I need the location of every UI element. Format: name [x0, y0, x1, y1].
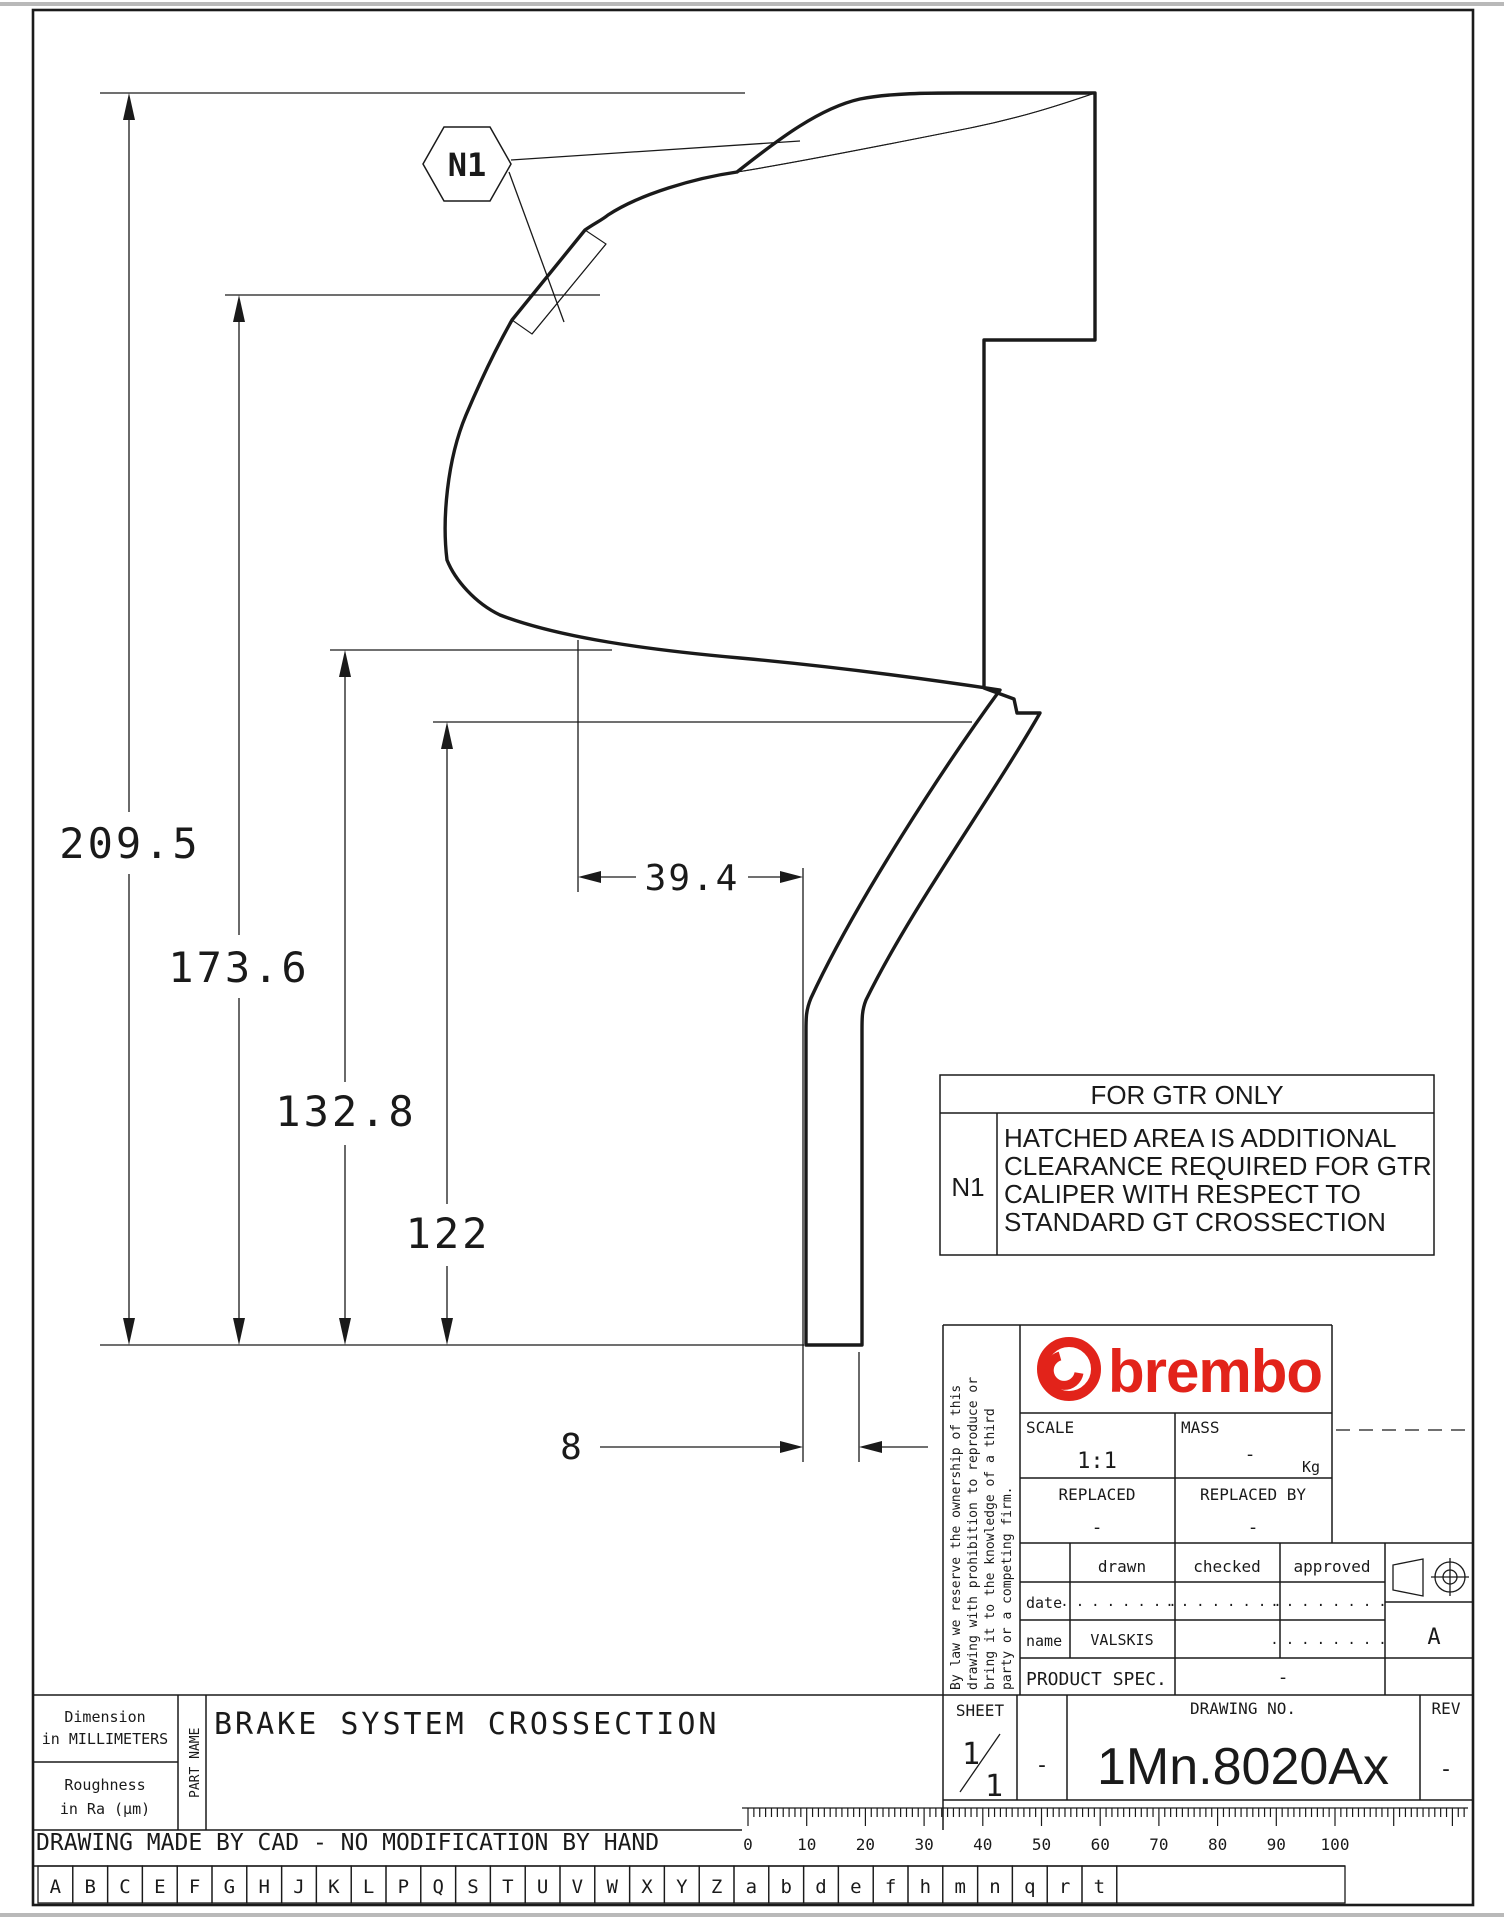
dim-note-line1: Dimension: [64, 1708, 145, 1726]
name-approved-dots: ........: [1270, 1632, 1393, 1648]
dim-173-label: 173.6: [168, 943, 309, 992]
rev-label: REV: [1432, 1699, 1461, 1718]
note-line-3: CALIPER WITH RESPECT TO: [1004, 1179, 1361, 1209]
sheet-den: 1: [985, 1769, 1003, 1804]
col-checked-label: checked: [1193, 1557, 1260, 1576]
note-title: FOR GTR ONLY: [1090, 1080, 1283, 1110]
gtr-note-box: FOR GTR ONLY N1 HATCHED AREA IS ADDITION…: [940, 1075, 1434, 1255]
zone-letter: e: [850, 1876, 861, 1898]
zone-letter: E: [154, 1876, 165, 1898]
zone-letter: t: [1094, 1876, 1105, 1898]
title-block: By law we reserve the ownership of this …: [33, 1325, 1473, 1830]
product-spec-value: -: [1278, 1667, 1289, 1688]
zone-cell-empty: [1117, 1866, 1345, 1903]
n1-callout-label: N1: [448, 146, 487, 184]
dim-39: 39.4: [578, 858, 803, 899]
zone-letter: G: [224, 1876, 235, 1898]
ruler-number: 0: [743, 1835, 753, 1854]
legal-line-1: By law we reserve the ownership of this: [949, 1385, 964, 1690]
footer-strips: Dimension in MILLIMETERS Roughness in Ra…: [33, 1695, 1468, 1903]
scale-value: 1:1: [1077, 1449, 1117, 1474]
sheet-label: SHEET: [956, 1701, 1005, 1720]
rough-note-line2: in Ra (µm): [60, 1800, 150, 1818]
rev-value: -: [1439, 1757, 1452, 1782]
dim-209: 209.5: [59, 93, 200, 1345]
row-date-label: date: [1026, 1594, 1062, 1612]
col-drawn-label: drawn: [1098, 1557, 1146, 1576]
sheet-dash: -: [1035, 1753, 1048, 1778]
product-spec-label: PRODUCT SPEC.: [1026, 1669, 1167, 1690]
rough-note-line1: Roughness: [64, 1776, 145, 1794]
replaced-by-value: -: [1248, 1517, 1259, 1538]
zone-letter: Z: [711, 1876, 722, 1898]
zone-letter: a: [746, 1876, 757, 1898]
zone-letter: K: [328, 1876, 340, 1898]
mass-unit: Kg: [1302, 1458, 1320, 1476]
zone-letter: Y: [676, 1876, 688, 1898]
legal-line-3: bring it to the knowledge of a third: [983, 1408, 998, 1690]
zone-letter: V: [572, 1876, 583, 1898]
zone-letter: Q: [432, 1876, 443, 1898]
dim-132: 132.8: [275, 650, 416, 1345]
zone-letter: d: [815, 1876, 826, 1898]
note-line-2: CLEARANCE REQUIRED FOR GTR: [1004, 1151, 1432, 1181]
zone-letter: F: [189, 1876, 200, 1898]
zone-letter: A: [50, 1876, 62, 1898]
format-letter: A: [1427, 1625, 1440, 1650]
drawing-sheet: N1 209.5 173.6: [0, 0, 1504, 1920]
zone-letter: m: [954, 1876, 965, 1898]
dim-8-label: 8: [560, 1427, 584, 1468]
note-line-4: STANDARD GT CROSSECTION: [1004, 1207, 1386, 1237]
zone-letter: C: [119, 1876, 130, 1898]
zone-letter-row: ABCEFGHJKLPQSTUVWXYZabdefhmnqrt: [38, 1866, 1345, 1903]
dim-8: 8: [560, 1427, 928, 1468]
brembo-logo: brembo: [1042, 1338, 1322, 1405]
brembo-wordmark: brembo: [1108, 1338, 1322, 1405]
scale-label: SCALE: [1026, 1418, 1074, 1437]
cad-note: DRAWING MADE BY CAD - NO MODIFICATION BY…: [36, 1830, 659, 1856]
zone-letter: h: [920, 1876, 931, 1898]
dim-122: 122: [406, 722, 491, 1345]
drawing-no-value: 1Mn.8020Ax: [1097, 1738, 1389, 1796]
zone-letter: H: [258, 1876, 269, 1898]
ruler-scale: 0102030405060708090100: [742, 1808, 1468, 1854]
replaced-by-label: REPLACED BY: [1200, 1485, 1306, 1504]
zone-letter: J: [293, 1876, 304, 1898]
ruler-number: 50: [1032, 1835, 1051, 1854]
zone-letter: T: [502, 1876, 513, 1898]
zone-letter: S: [467, 1876, 478, 1898]
dim-209-label: 209.5: [59, 819, 200, 868]
ruler-number: 30: [914, 1835, 933, 1854]
zone-letter: U: [537, 1876, 548, 1898]
ruler-number: 10: [797, 1835, 816, 1854]
note-line-1: HATCHED AREA IS ADDITIONAL: [1004, 1123, 1397, 1153]
name-drawn-value: VALSKIS: [1090, 1631, 1153, 1649]
ruler-number: 40: [973, 1835, 992, 1854]
ruler-number: 80: [1208, 1835, 1227, 1854]
page-top-edge: [0, 2, 1504, 6]
legal-line-4: party or a competing firm.: [1000, 1487, 1015, 1691]
replaced-label: REPLACED: [1058, 1485, 1135, 1504]
ruler-number: 100: [1321, 1835, 1350, 1854]
zone-letter: P: [398, 1876, 409, 1898]
page-bottom-edge: [0, 1913, 1504, 1917]
note-tag: N1: [951, 1172, 984, 1202]
ruler-number: 70: [1149, 1835, 1168, 1854]
part-title: BRAKE SYSTEM CROSSECTION: [214, 1707, 719, 1742]
drawing-no-label: DRAWING NO.: [1190, 1699, 1296, 1718]
zone-letter: r: [1059, 1876, 1070, 1898]
zone-letter: B: [84, 1876, 95, 1898]
zone-letter: W: [606, 1876, 618, 1898]
dim-note-line2: in MILLIMETERS: [42, 1730, 168, 1748]
mass-label: MASS: [1181, 1418, 1220, 1437]
projection-symbol-icon: [1393, 1558, 1469, 1596]
zone-letter: X: [641, 1876, 653, 1898]
dim-39-label: 39.4: [645, 858, 740, 899]
dim-132-label: 132.8: [275, 1087, 416, 1136]
mass-value: -: [1245, 1444, 1256, 1465]
zone-letter: b: [780, 1876, 791, 1898]
ruler-number: 20: [856, 1835, 875, 1854]
dim-122-label: 122: [406, 1209, 491, 1258]
legal-text: By law we reserve the ownership of this …: [949, 1377, 1015, 1690]
replaced-value: -: [1092, 1517, 1103, 1538]
legal-line-2: drawing with prohibition to reproduce or: [966, 1377, 981, 1690]
date-approved-dots: ........: [1270, 1594, 1393, 1610]
col-approved-label: approved: [1293, 1557, 1370, 1576]
ruler-number: 90: [1267, 1835, 1286, 1854]
part-name-label: PART NAME: [188, 1728, 203, 1798]
brembo-emblem-hook: [1049, 1356, 1079, 1385]
zone-letter: q: [1024, 1876, 1035, 1898]
row-name-label: name: [1026, 1632, 1062, 1650]
zone-letter: n: [989, 1876, 1000, 1898]
zone-letter: f: [885, 1876, 896, 1898]
ruler-number: 60: [1091, 1835, 1110, 1854]
zone-letter: L: [363, 1876, 374, 1898]
